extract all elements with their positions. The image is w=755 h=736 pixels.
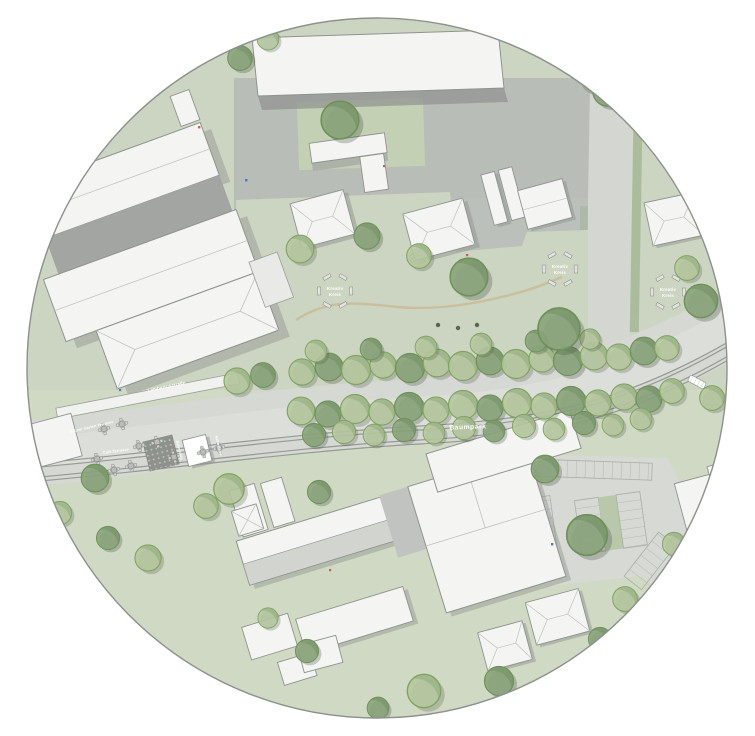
north-road <box>585 58 634 355</box>
svg-text:Kreis: Kreis <box>662 293 674 298</box>
site-plan-map: Kreativ Kreis Kreativ Kreis Kreativ Krei… <box>0 0 755 736</box>
svg-text:Kreis: Kreis <box>554 270 566 275</box>
creative-circle-label: Kreativ <box>327 286 344 291</box>
hedge-ne-2 <box>668 93 712 119</box>
svg-text:Kreativ: Kreativ <box>660 287 677 292</box>
avenue-label: Baumpark <box>449 423 486 431</box>
site-plan-page: Kreativ Kreis Kreativ Kreis Kreativ Krei… <box>0 0 755 736</box>
hall-building <box>252 30 508 110</box>
road-southeast <box>645 565 755 638</box>
svg-text:Kreis: Kreis <box>329 292 341 297</box>
svg-text:Kreativ: Kreativ <box>552 264 569 269</box>
